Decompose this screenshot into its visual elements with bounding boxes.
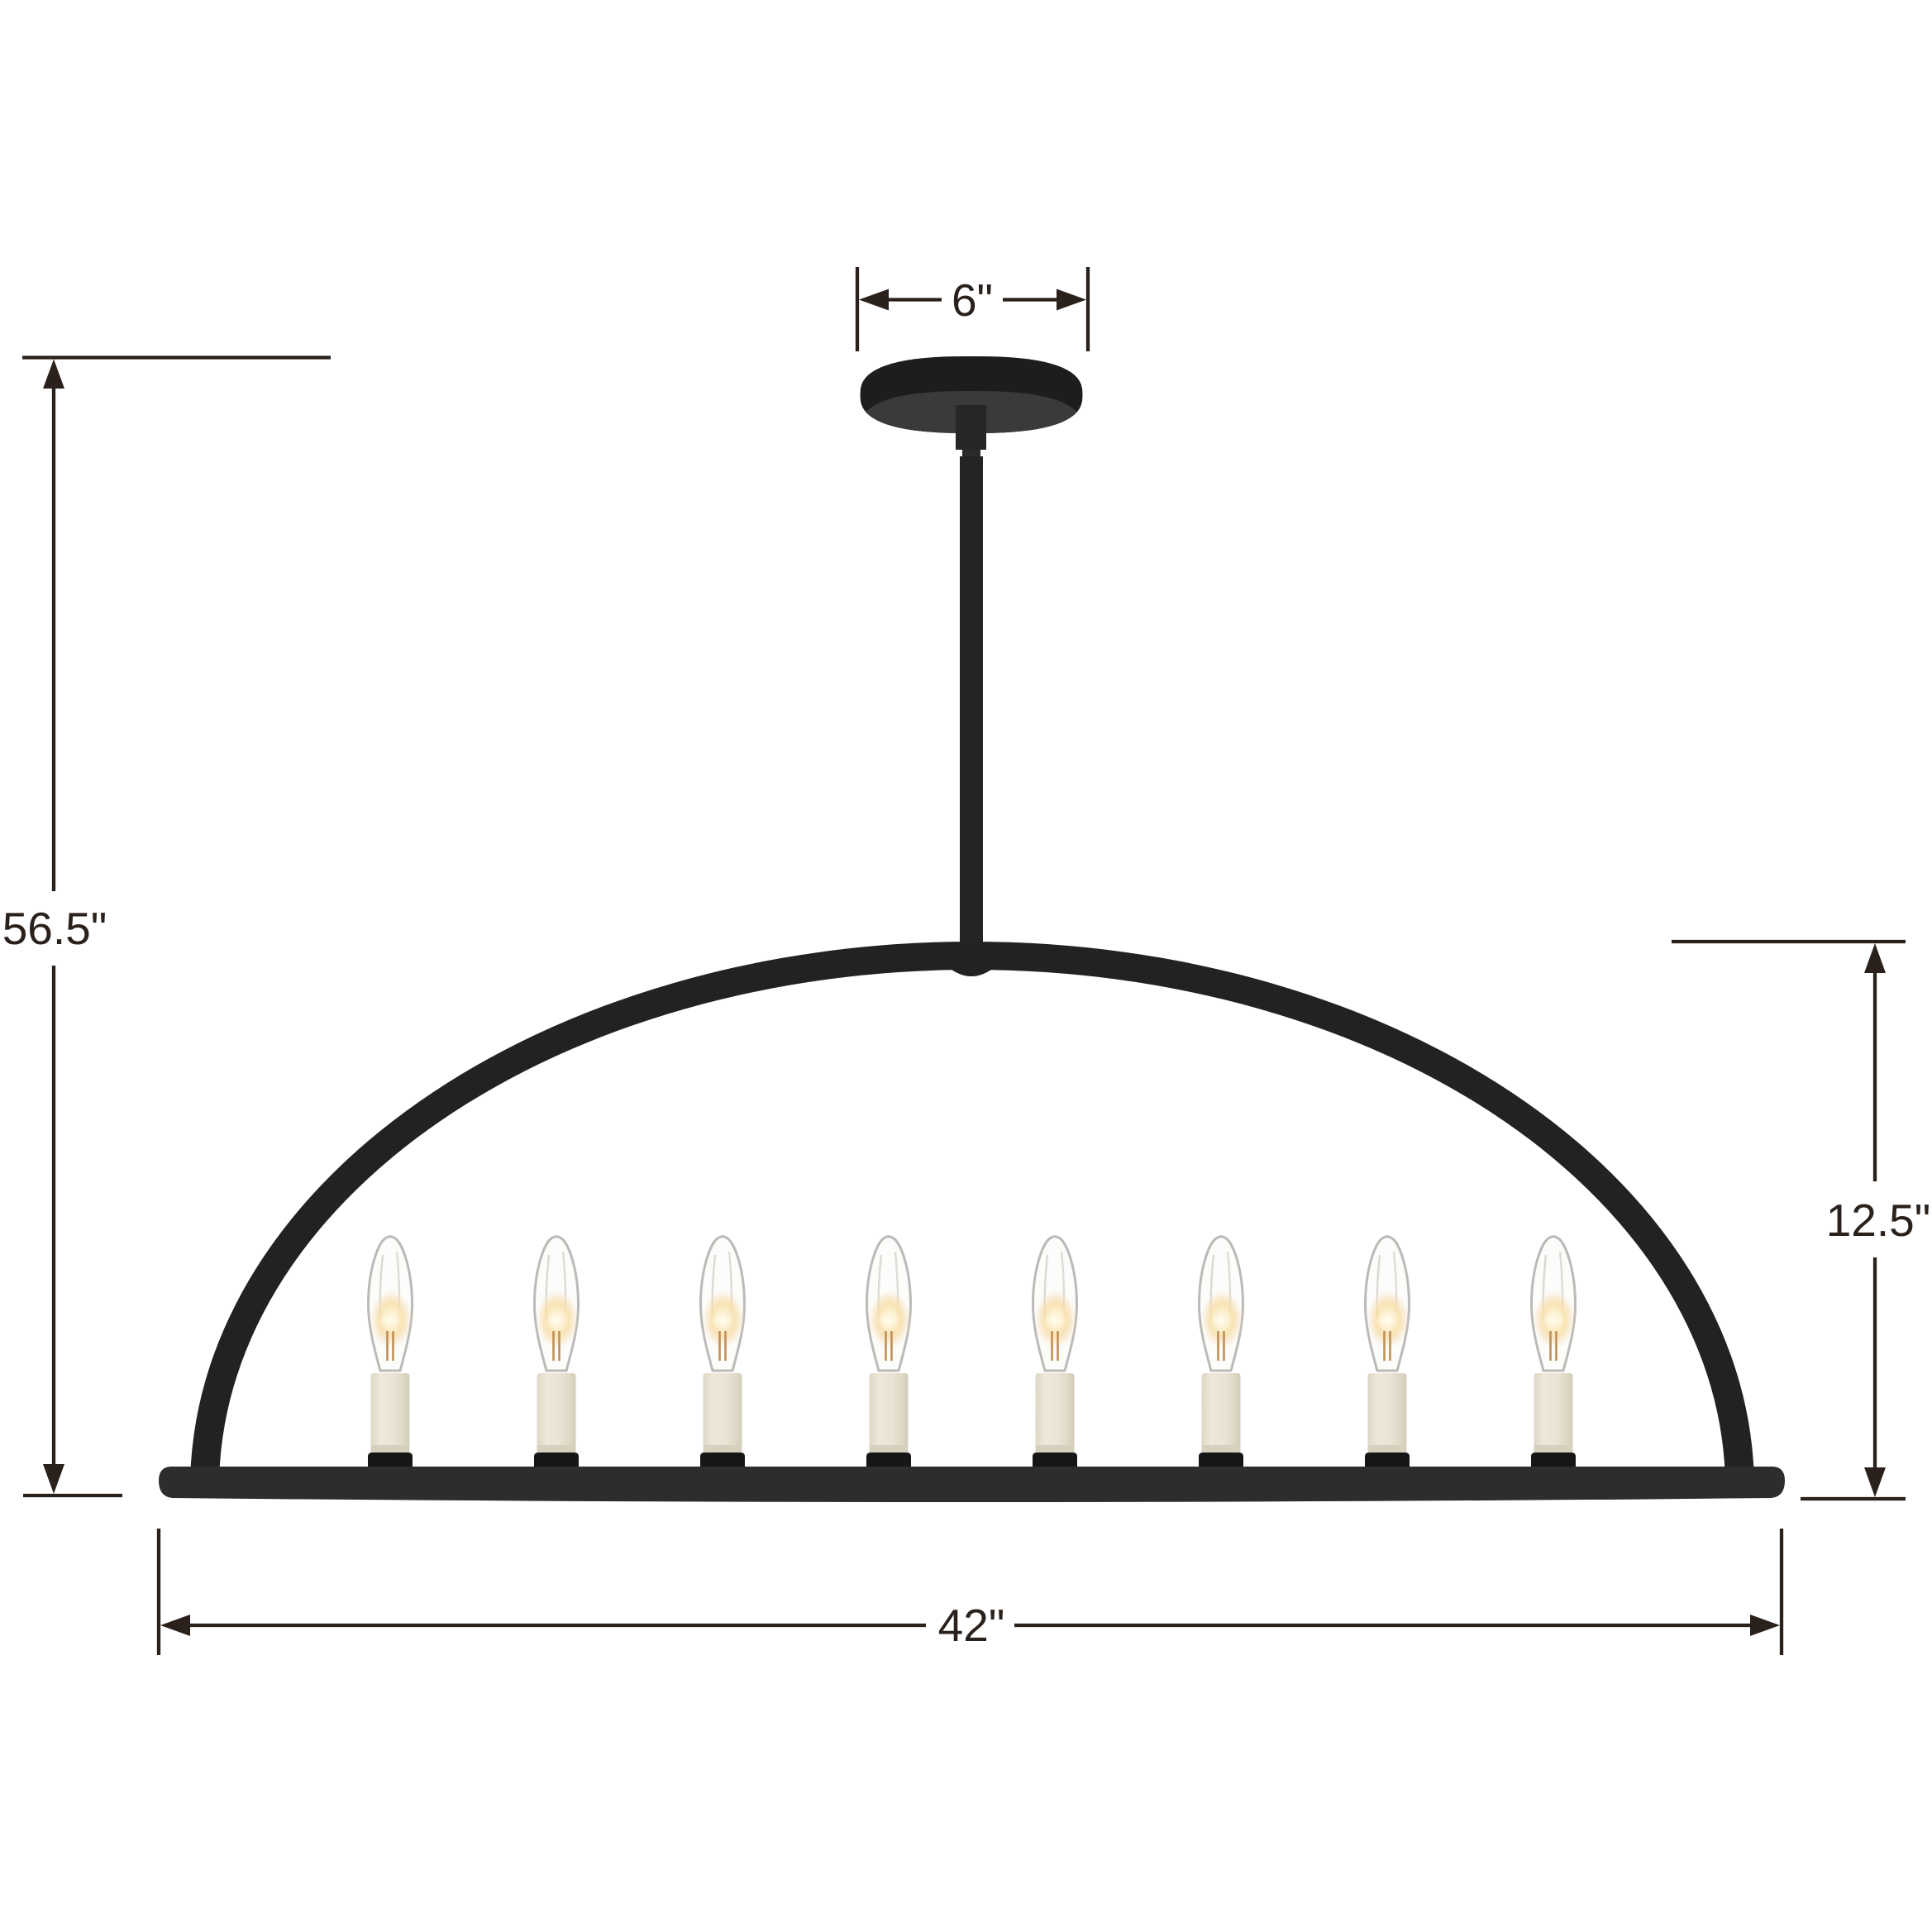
svg-text:6": 6" <box>952 274 993 326</box>
svg-text:56.5": 56.5" <box>2 903 107 954</box>
svg-text:12.5": 12.5" <box>1826 1195 1931 1246</box>
svg-text:42": 42" <box>938 1600 1005 1651</box>
